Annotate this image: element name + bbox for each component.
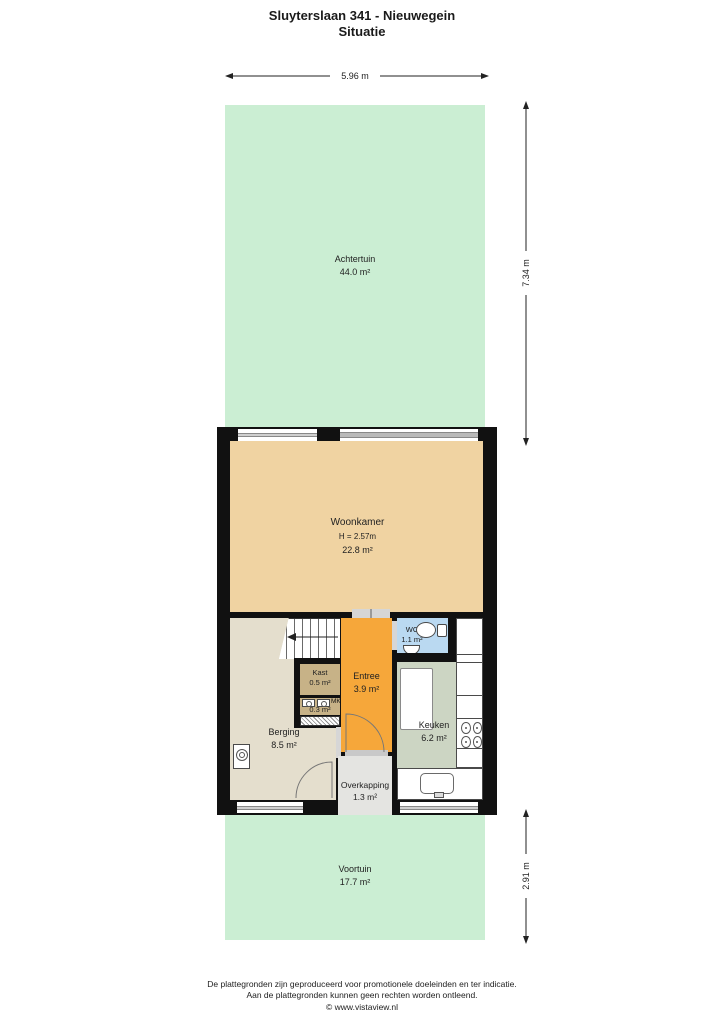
footer-line-2: Aan de plattegronden kunnen geen rechten… bbox=[0, 990, 724, 1001]
achtertuin-label: Achtertuin 44.0 m² bbox=[335, 253, 376, 279]
rear-window-left bbox=[238, 429, 317, 441]
page-title-address: Sluyterslaan 341 - Nieuwegein bbox=[0, 8, 724, 24]
entree-label: Entree 3.9 m² bbox=[341, 670, 392, 696]
achtertuin-name: Achtertuin bbox=[335, 253, 376, 266]
woonkamer-area: 22.8 m² bbox=[300, 544, 415, 557]
voortuin-area: 17.7 m² bbox=[338, 876, 371, 889]
garden-voortuin: Voortuin 17.7 m² bbox=[225, 815, 485, 940]
front-window-right bbox=[400, 802, 478, 813]
wc-door-opening bbox=[392, 621, 397, 650]
woonkamer-name: Woonkamer bbox=[300, 516, 415, 531]
voortuin-name: Voortuin bbox=[338, 863, 371, 876]
kast-label: Kast 0.5 m² bbox=[300, 664, 340, 688]
voortuin-label: Voortuin 17.7 m² bbox=[338, 863, 371, 889]
kitchen-counter bbox=[456, 618, 483, 768]
toilet-icon bbox=[416, 622, 436, 638]
page-title-subtitle: Situatie bbox=[0, 24, 724, 40]
footer-copyright: © www.vistaview.nl bbox=[0, 1002, 724, 1013]
overkapping-name: Overkapping bbox=[334, 779, 396, 791]
toilet-tank-icon bbox=[437, 624, 447, 637]
berging-entree-door-opening bbox=[336, 727, 341, 758]
room-meterkast: MK 0.3 m² bbox=[300, 698, 340, 715]
floorplan-page: Sluyterslaan 341 - Nieuwegein Situatie 5… bbox=[0, 0, 724, 1024]
overkapping-label: Overkapping 1.3 m² bbox=[334, 779, 396, 804]
dimension-right-upper-label: 7.34 m bbox=[520, 251, 532, 295]
rear-window-right bbox=[340, 429, 478, 441]
keuken-label: Keuken 6.2 m² bbox=[404, 719, 464, 745]
keuken-area: 6.2 m² bbox=[404, 732, 464, 745]
dimension-right-lower-label: 2.91 m bbox=[520, 854, 532, 898]
footer-disclaimer: De plattegronden zijn geproduceerd voor … bbox=[0, 979, 724, 1013]
woonkamer-height: H = 2.57m bbox=[300, 531, 415, 543]
meterkast-name: MK bbox=[331, 698, 341, 705]
keuken-name: Keuken bbox=[404, 719, 464, 732]
wc-keuken-wall bbox=[392, 653, 456, 662]
meterkast-area: 0.3 m² bbox=[300, 705, 340, 716]
woonkamer-label: Woonkamer H = 2.57m 22.8 m² bbox=[300, 516, 415, 557]
entree-area: 3.9 m² bbox=[341, 683, 392, 696]
dimension-top-label: 5.96 m bbox=[330, 70, 380, 82]
berging-label: Berging 8.5 m² bbox=[238, 726, 330, 752]
kast-name: Kast bbox=[300, 668, 340, 678]
kast-area: 0.5 m² bbox=[300, 678, 340, 688]
water-heater-icon bbox=[233, 744, 250, 769]
stove-icon bbox=[459, 720, 484, 750]
faucet-icon bbox=[434, 792, 444, 798]
overkapping-area: 1.3 m² bbox=[334, 791, 396, 803]
achtertuin-area: 44.0 m² bbox=[335, 266, 376, 279]
stair-direction-arrow bbox=[284, 630, 342, 644]
footer-line-1: De plattegronden zijn geproduceerd voor … bbox=[0, 979, 724, 990]
room-kast: Kast 0.5 m² bbox=[300, 664, 340, 695]
woonkamer-door-opening bbox=[352, 609, 390, 618]
entree-name: Entree bbox=[341, 670, 392, 683]
page-title: Sluyterslaan 341 - Nieuwegein Situatie bbox=[0, 8, 724, 41]
void-hatch-area bbox=[300, 716, 340, 726]
sink-basin-icon bbox=[420, 773, 454, 794]
garden-achtertuin: Achtertuin 44.0 m² bbox=[225, 105, 485, 427]
front-window-left bbox=[237, 802, 303, 813]
kitchen-sink-counter bbox=[397, 768, 483, 800]
berging-area: 8.5 m² bbox=[238, 739, 330, 752]
